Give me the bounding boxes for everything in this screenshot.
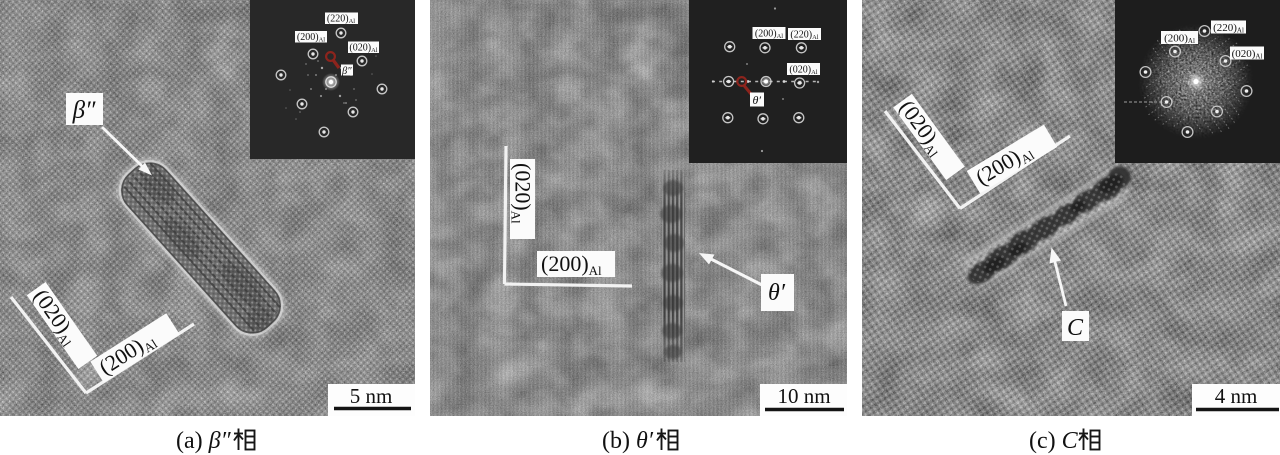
svg-text:10 nm: 10 nm [777,384,830,408]
svg-text:β″: β″ [341,66,352,77]
svg-text:(c) C: (c) C [1029,428,1079,454]
svg-text:C: C [1067,315,1084,341]
svg-text:5 nm: 5 nm [350,384,393,408]
svg-text:β″: β″ [72,97,96,124]
svg-text:(b) θ′: (b) θ′ [602,428,654,454]
svg-text:(a) β″: (a) β″ [176,428,232,454]
svg-text:θ′: θ′ [768,280,786,306]
svg-text:θ′: θ′ [753,93,762,107]
svg-text:4 nm: 4 nm [1215,384,1258,408]
